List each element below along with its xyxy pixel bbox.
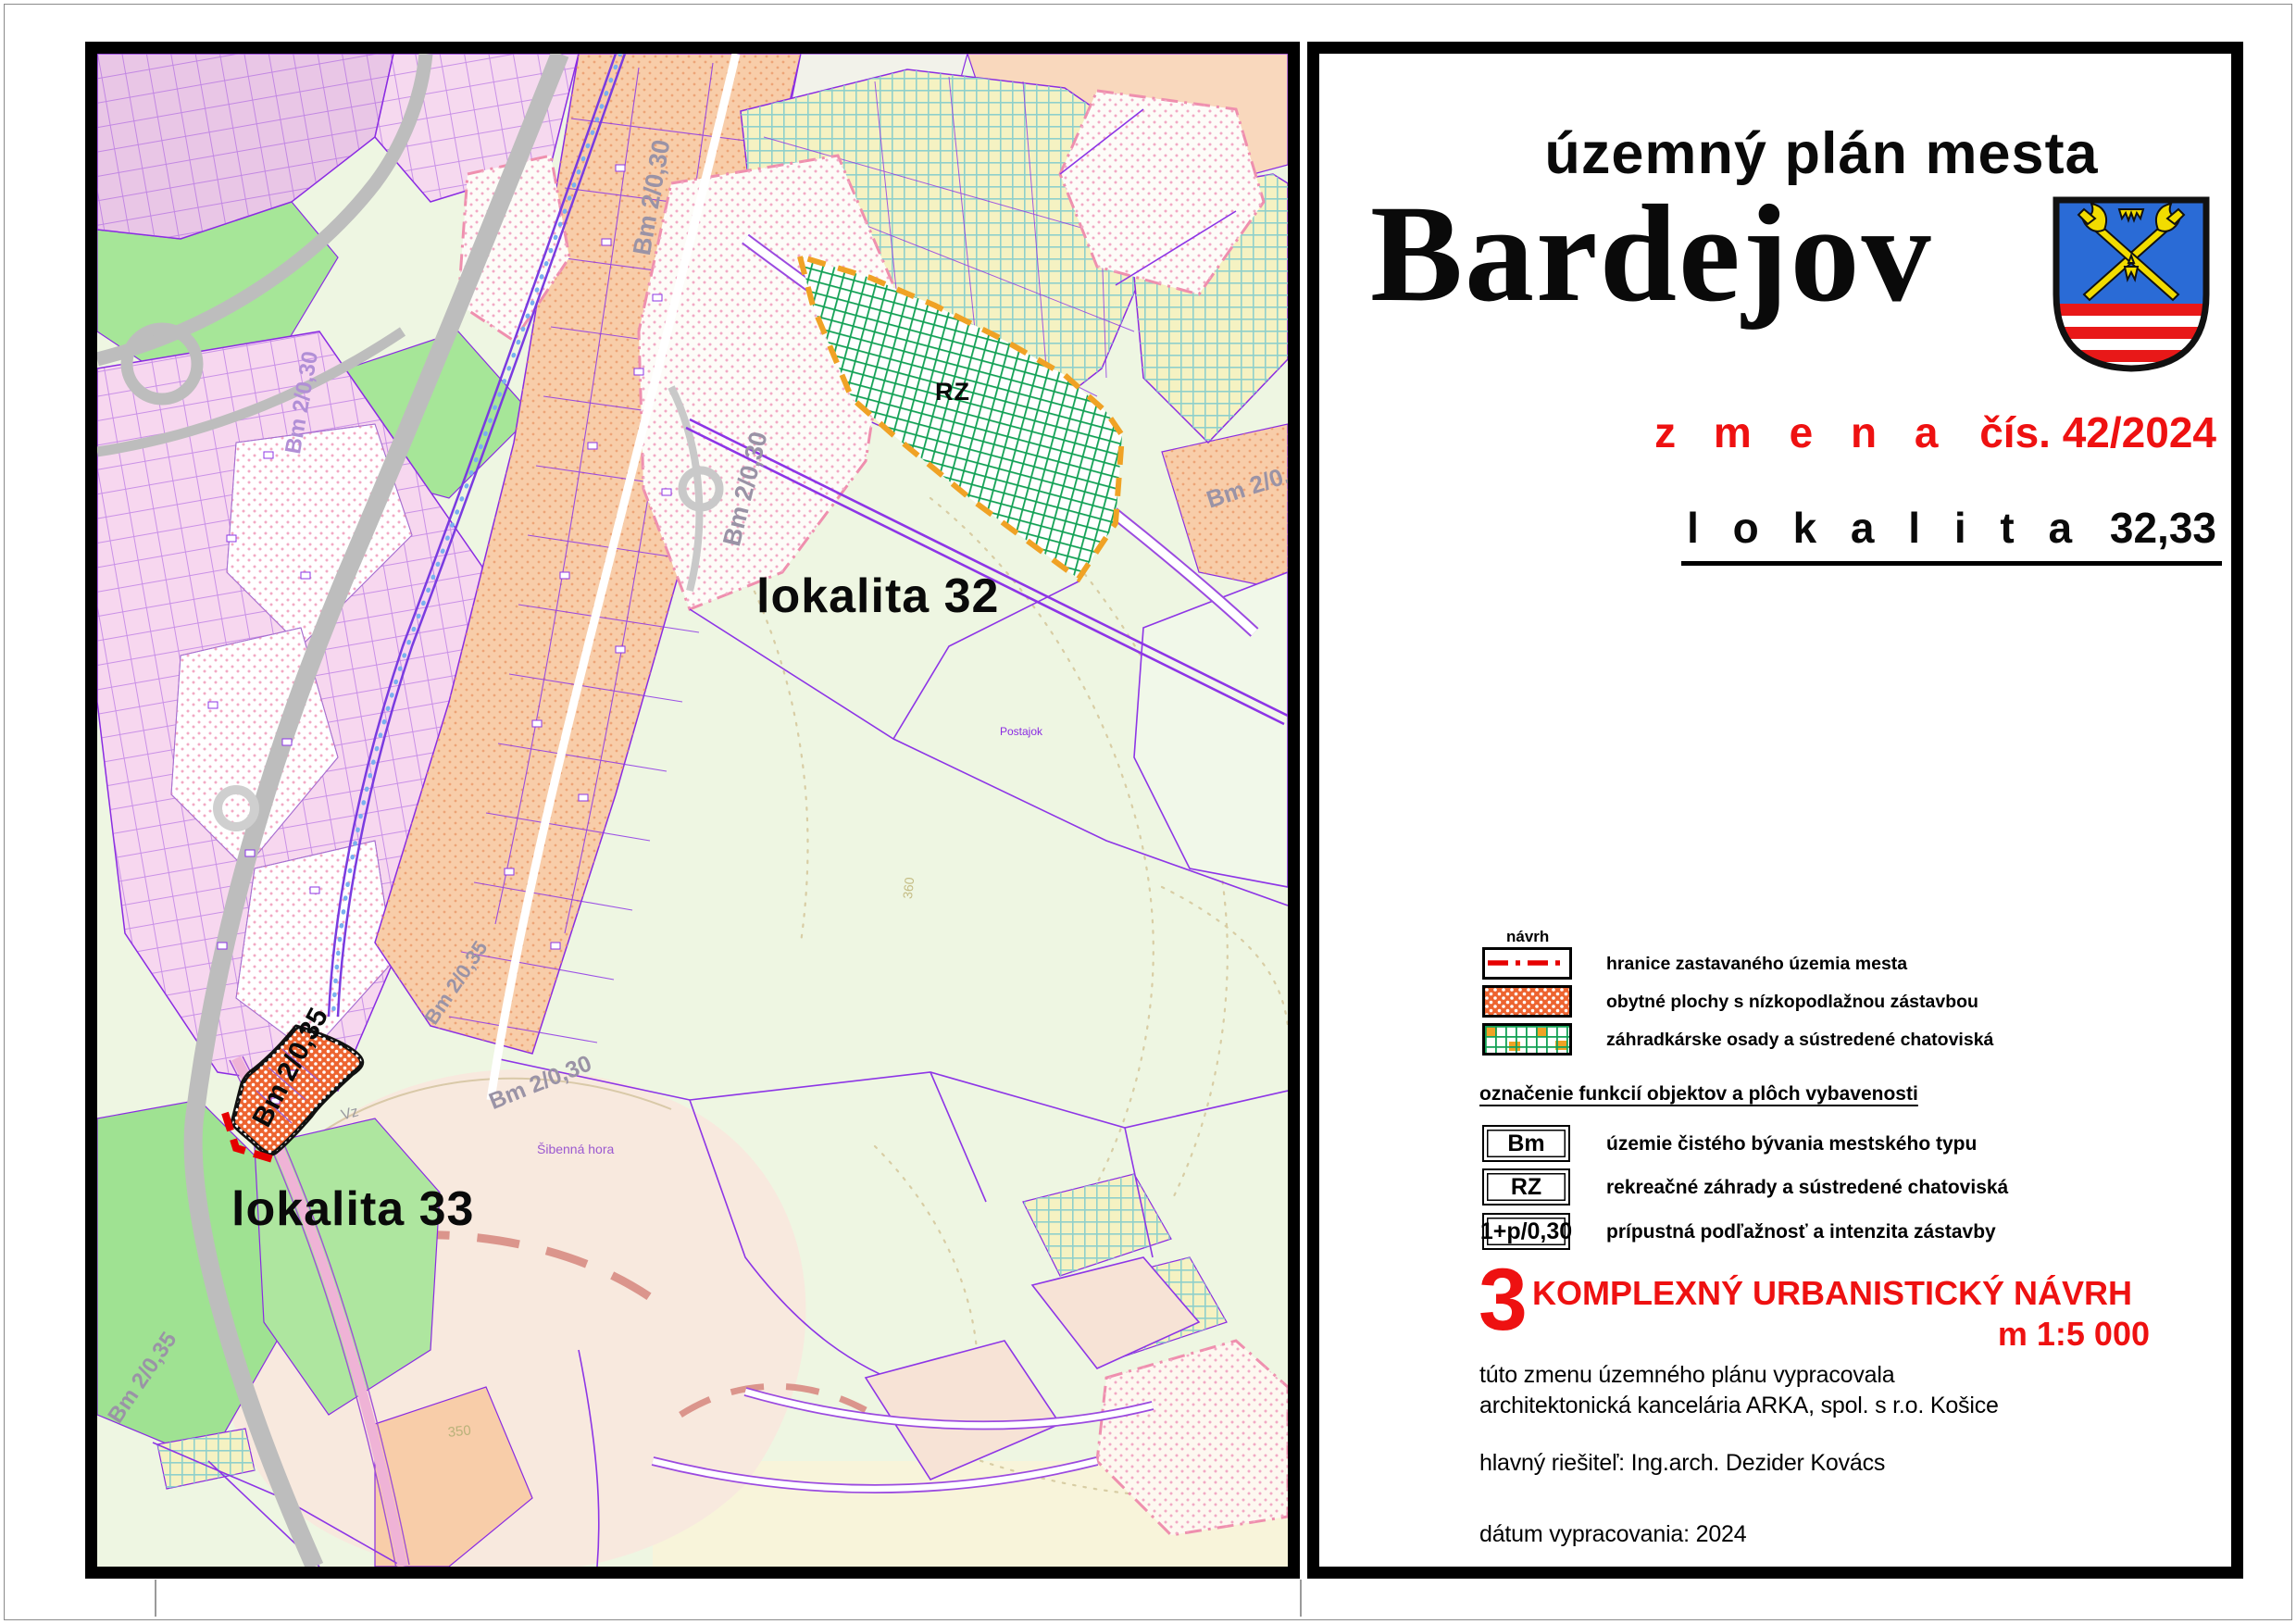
label-contour-360: 360 (901, 877, 916, 900)
credit-date: dátum vypracovania: 2024 (1479, 1521, 1746, 1548)
credit-resolver: hlavný riešiteľ: Ing.arch. Dezider Kovác… (1479, 1450, 1885, 1477)
label-contour-350: 350 (447, 1423, 471, 1440)
symbol-box-bm: Bm (1482, 1125, 1570, 1162)
title-panel: územný plán mesta Bardejov (1307, 42, 2243, 1579)
lokalita-line: l o k a l i t a 32,33 (1681, 503, 2222, 566)
fold-mark-right (1300, 1580, 1302, 1617)
boundary-line-symbol (1485, 950, 1569, 977)
legend-swatch-gardens (1482, 1023, 1572, 1056)
label-postajok: Postajok (1000, 726, 1042, 737)
zmena-number: čís. 42/2024 (1979, 408, 2216, 456)
lokalita-label: l o k a l i t a (1687, 504, 2083, 552)
label-rz: RZ (935, 380, 970, 405)
label-lokalita-32: lokalita 32 (756, 572, 999, 620)
zmena-line: z m e n a čís. 42/2024 (1654, 407, 2216, 457)
cadastral-map-graphic (97, 54, 1288, 1567)
legend-label-residential: obytné plochy s nízkopodlažnou zástavbou (1606, 992, 1978, 1013)
bardejov-coat-of-arms (2049, 194, 2214, 372)
city-name: Bardejov (1370, 181, 1933, 328)
credit-line-2: architektonická kancelária ARKA, spol. s… (1479, 1393, 1999, 1419)
section-scale: m 1:5 000 (1998, 1315, 2150, 1354)
symbol-label-floors: prípustná podľažnosť a intenzita zástavb… (1606, 1221, 1996, 1243)
residential-area-symbol (1485, 988, 1569, 1015)
legend-navrh-title: návrh (1506, 928, 1549, 946)
legend-label-gardens: záhradkárske osady a sústredené chatovis… (1606, 1030, 1993, 1051)
garden-area-symbol (1485, 1026, 1569, 1053)
plan-sheet: lokalita 32 lokalita 33 RZ Bm 2/0,35 Bm … (0, 0, 2296, 1624)
zmena-label: z m e n a (1654, 408, 1951, 456)
section-number: 3 (1479, 1263, 1528, 1338)
functions-heading: označenie funkcií objektov a plôch vybav… (1479, 1083, 1918, 1106)
label-lokalita-33: lokalita 33 (231, 1185, 474, 1233)
lokalita-number: 32,33 (2110, 504, 2216, 552)
section-title: KOMPLEXNÝ URBANISTICKÝ NÁVRH (1532, 1274, 2132, 1313)
credit-line-1: túto zmenu územného plánu vypracovala (1479, 1362, 1894, 1389)
symbol-box-floors: 1+p/0,30 (1482, 1213, 1570, 1250)
legend-swatch-boundary (1482, 947, 1572, 980)
symbol-box-rz: RZ (1482, 1168, 1570, 1206)
legend-swatch-residential (1482, 985, 1572, 1018)
fold-mark-left (155, 1580, 156, 1617)
map-panel: lokalita 32 lokalita 33 RZ Bm 2/0,35 Bm … (85, 42, 1300, 1579)
label-sibenna-hora: Šibenná hora (537, 1143, 614, 1156)
symbol-label-bm: územie čistého bývania mestského typu (1606, 1133, 1977, 1156)
symbol-label-rz: rekreačné záhrady a sústredené chatovisk… (1606, 1177, 2008, 1199)
legend-label-boundary: hranice zastavaného územia mesta (1606, 954, 1907, 975)
